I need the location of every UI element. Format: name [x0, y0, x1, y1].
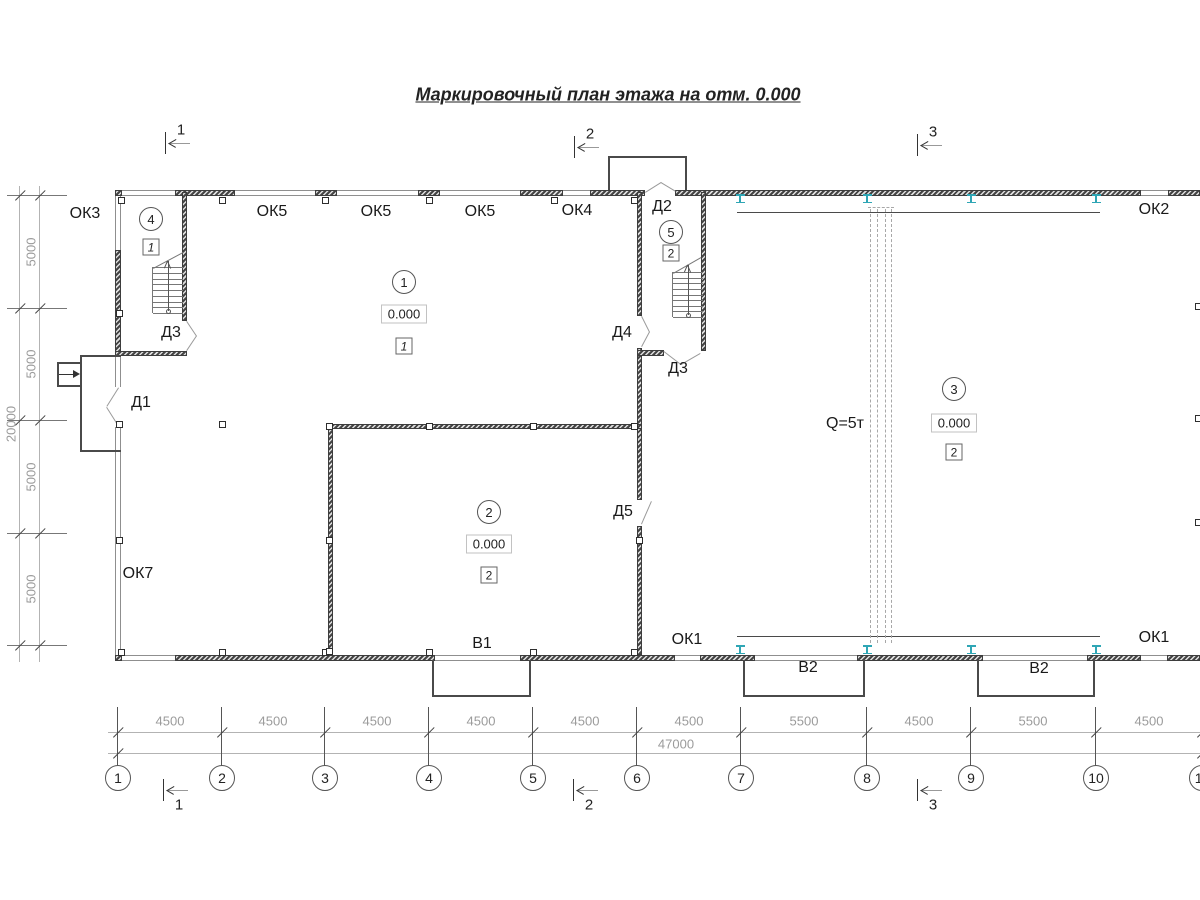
grid-axis-line [428, 707, 429, 766]
grid-bubble: 10 [1083, 765, 1109, 791]
column-marker [631, 649, 638, 656]
column-marker [326, 648, 333, 655]
crane-bracket-ibeam [736, 653, 745, 655]
column-marker [219, 649, 226, 656]
plan-label: Д1 [131, 394, 151, 412]
grid-bubble: 5 [520, 765, 546, 791]
plan-label: ОК1 [672, 631, 703, 649]
column-marker [118, 197, 125, 204]
door-leaf [641, 501, 652, 524]
window-segment [337, 190, 418, 196]
vestibule-outline [608, 156, 687, 190]
window-segment [675, 655, 700, 661]
grid-axis-line [636, 707, 637, 766]
section-marker-tick [573, 779, 574, 801]
crane-bracket-ibeam [863, 653, 872, 655]
section-marker-tick [165, 132, 166, 154]
grid-axis-line [324, 707, 325, 766]
dimension-total-text: 20000 [4, 406, 19, 442]
dimension-total-text: 47000 [658, 737, 694, 752]
dimension-text: 4500 [1135, 714, 1164, 729]
window-segment [235, 190, 315, 196]
dimension-text: 4500 [259, 714, 288, 729]
extension-line [7, 195, 67, 196]
stair-flight-edge [152, 267, 153, 313]
grid-axis-line [221, 707, 222, 766]
crane-track-dashed [877, 209, 878, 643]
wall-segment [857, 655, 983, 661]
dimension-text: 4500 [571, 714, 600, 729]
crane-bracket-ibeam [1092, 653, 1101, 655]
section-marker-label: 1 [175, 797, 183, 814]
wall-segment [115, 250, 121, 357]
section-marker-tick [574, 136, 575, 158]
dimension-text: 5000 [24, 575, 39, 604]
plan-label: Д2 [652, 198, 672, 216]
room-number-circle: 2 [477, 500, 501, 524]
plan-label: В2 [798, 659, 818, 677]
room-type-box: 1 [143, 239, 160, 256]
dimension-text: 5000 [24, 463, 39, 492]
grid-axis-line [866, 707, 867, 766]
wall-segment [520, 190, 563, 196]
section-marker-label: 2 [586, 126, 594, 143]
column-marker [636, 537, 643, 544]
wall-segment [1087, 655, 1141, 661]
column-marker [631, 197, 638, 204]
extension-line [7, 308, 67, 309]
column-marker [426, 423, 433, 430]
door-leaf [641, 316, 650, 332]
section-marker-label: 3 [929, 797, 937, 814]
floor-plan-canvas: Маркировочный план этажа на отм. 0.000 О… [0, 0, 1200, 900]
room-type-box: 2 [481, 567, 498, 584]
grid-bubble: 2 [209, 765, 235, 791]
crane-bracket-ibeam [967, 202, 976, 204]
porch-outline [80, 355, 121, 452]
wall-segment [1168, 190, 1200, 196]
plan-label: В1 [472, 635, 492, 653]
platform-outline [432, 660, 531, 697]
grid-axis-line [532, 707, 533, 766]
extension-line [7, 533, 67, 534]
grid-bubble: 3 [312, 765, 338, 791]
window-segment [1141, 190, 1168, 196]
crane-track-dashed [891, 209, 892, 643]
grid-axis-line [117, 707, 118, 766]
elevation-box: 0.000 [466, 535, 512, 554]
section-marker-tick [917, 779, 918, 801]
crane-bracket-ibeam [736, 202, 745, 204]
column-marker [326, 537, 333, 544]
dimension-text: 5500 [790, 714, 819, 729]
grid-bubble: 4 [416, 765, 442, 791]
page-title: Маркировочный план этажа на отм. 0.000 [415, 85, 800, 106]
stair-flight-edge [672, 272, 673, 317]
column-marker [1195, 519, 1200, 526]
plan-label: Д3 [668, 360, 688, 378]
plan-label: ОК2 [1139, 201, 1170, 219]
grid-bubble: 7 [728, 765, 754, 791]
column-marker [1195, 303, 1200, 310]
elevation-box: 0.000 [381, 305, 427, 324]
wall-segment [175, 655, 435, 661]
plan-label: ОК4 [562, 202, 593, 220]
column-marker [116, 310, 123, 317]
column-marker [530, 423, 537, 430]
crane-track-dashed [868, 207, 894, 208]
plan-label: В2 [1029, 660, 1049, 678]
grid-bubble: 6 [624, 765, 650, 791]
wall-segment [328, 424, 642, 429]
room-number-circle: 1 [392, 270, 416, 294]
plan-label: ОК5 [361, 203, 392, 221]
entrance-arrow-head [73, 370, 80, 378]
column-marker [426, 649, 433, 656]
column-marker [426, 197, 433, 204]
plan-label: ОК7 [123, 565, 154, 583]
window-segment [563, 190, 590, 196]
crane-bracket-ibeam [863, 202, 872, 204]
column-marker [1195, 415, 1200, 422]
grid-bubble: 1 [105, 765, 131, 791]
crane-track-dashed [885, 209, 886, 643]
wall-segment [637, 526, 642, 655]
plan-label: ОК1 [1139, 629, 1170, 647]
dimension-line [108, 732, 1200, 733]
dimension-text: 4500 [905, 714, 934, 729]
room-type-box: 2 [663, 245, 680, 262]
dimension-text: 4500 [675, 714, 704, 729]
window-segment [115, 196, 121, 250]
room-number-circle: 4 [139, 207, 163, 231]
column-marker [116, 537, 123, 544]
stair-arrow-start [166, 309, 171, 314]
column-marker [219, 421, 226, 428]
dimension-text: 4500 [156, 714, 185, 729]
stair-arrow [168, 261, 169, 311]
wall-segment [418, 190, 440, 196]
entrance-arrow [59, 374, 73, 375]
section-marker-label: 3 [929, 124, 937, 141]
crane-bracket-ibeam [1092, 202, 1101, 204]
room-number-circle: 5 [659, 220, 683, 244]
room-number-circle: 3 [942, 377, 966, 401]
room-type-box: 1 [396, 338, 413, 355]
window-segment [1141, 655, 1167, 661]
plan-label: ОК5 [257, 203, 288, 221]
dimension-line [39, 186, 40, 662]
crane-rail-line [737, 636, 1100, 637]
grid-axis-line [1095, 707, 1096, 766]
section-marker-label: 1 [177, 122, 185, 139]
wall-segment [115, 655, 122, 661]
stair-arrow-start [686, 313, 691, 318]
crane-bracket-ibeam [967, 653, 976, 655]
wall-segment [115, 351, 187, 356]
door-leaf [186, 335, 197, 351]
window-segment [122, 190, 175, 196]
section-marker-label: 2 [585, 797, 593, 814]
plan-label: Д5 [613, 503, 633, 521]
wall-segment [1167, 655, 1200, 661]
window-segment [122, 655, 175, 661]
section-marker-tick [917, 134, 918, 156]
grid-axis-line [970, 707, 971, 766]
dimension-text: 5000 [24, 238, 39, 267]
wall-segment [637, 350, 664, 356]
dimension-text: 4500 [363, 714, 392, 729]
plan-label: ОК5 [465, 203, 496, 221]
plan-label: Д4 [612, 324, 632, 342]
grid-bubble: 8 [854, 765, 880, 791]
column-marker [631, 423, 638, 430]
plan-label: Д3 [161, 324, 181, 342]
column-marker [326, 423, 333, 430]
column-marker [551, 197, 558, 204]
wall-segment [637, 192, 642, 316]
crane-rail-line [737, 212, 1100, 213]
section-marker-tick [163, 779, 164, 801]
grid-bubble: 9 [958, 765, 984, 791]
dimension-text: 5500 [1019, 714, 1048, 729]
wall-segment [315, 190, 337, 196]
wall-segment [675, 190, 1141, 196]
column-marker [116, 421, 123, 428]
extension-line [7, 645, 67, 646]
grid-axis-line [740, 707, 741, 766]
plan-label: Q=5т [826, 415, 864, 433]
dimension-text: 5000 [24, 350, 39, 379]
column-marker [219, 197, 226, 204]
room-type-box: 2 [946, 444, 963, 461]
column-marker [530, 649, 537, 656]
dimension-line [108, 753, 1200, 754]
column-marker [118, 649, 125, 656]
elevation-box: 0.000 [931, 414, 977, 433]
wall-segment [520, 655, 675, 661]
plan-label: ОК3 [70, 205, 101, 223]
dimension-text: 4500 [467, 714, 496, 729]
window-segment [440, 190, 520, 196]
column-marker [322, 197, 329, 204]
door-leaf [641, 332, 650, 347]
grid-bubble: 11 [1189, 765, 1200, 791]
dimension-line [19, 186, 20, 662]
stair-arrow [688, 265, 689, 315]
crane-track-dashed [870, 209, 871, 643]
